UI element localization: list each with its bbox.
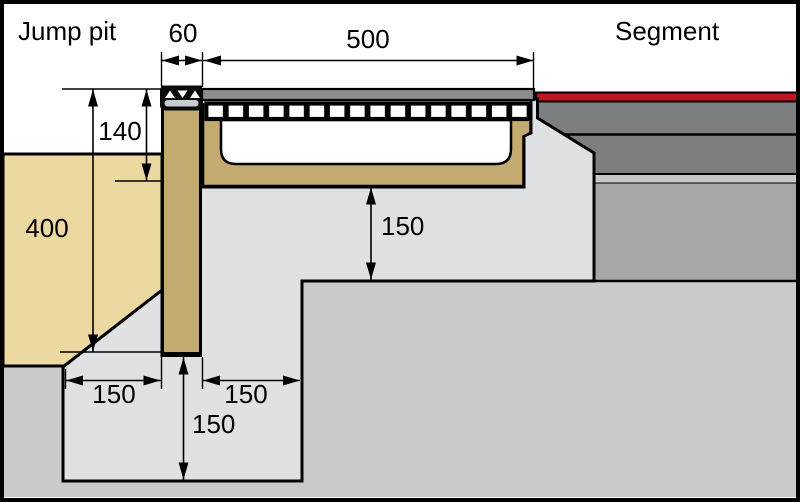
- dim-label-500: 500: [346, 24, 389, 54]
- dim-label-140: 140: [98, 116, 141, 146]
- dim-label-400: 400: [25, 213, 68, 243]
- dim-label-60: 60: [169, 18, 198, 48]
- grate-slots: [206, 103, 530, 121]
- asphalt-layer-upper: [537, 101, 798, 135]
- segment-label: Segment: [615, 16, 720, 46]
- cross-section-diagram: 60 500 400 140 150 150: [0, 0, 800, 502]
- dim-label-150-right: 150: [224, 379, 267, 409]
- track-surface-red: [536, 93, 797, 102]
- cap-slot: [165, 100, 199, 107]
- edge-board-body: [163, 87, 201, 354]
- separator-layer: [590, 174, 797, 184]
- jump-pit-label: Jump pit: [18, 16, 117, 46]
- edge-board: [160, 86, 203, 354]
- dim-label-150-foundation: 150: [192, 409, 235, 439]
- channel-interior: [221, 120, 511, 164]
- drainage-channel: [202, 89, 534, 186]
- dim-label-150-left: 150: [92, 379, 135, 409]
- diagram-canvas: 60 500 400 140 150 150: [0, 0, 800, 502]
- dim-label-150-bedding: 150: [381, 211, 424, 241]
- grate-frame: [202, 89, 534, 100]
- base-course-layer: [594, 184, 797, 282]
